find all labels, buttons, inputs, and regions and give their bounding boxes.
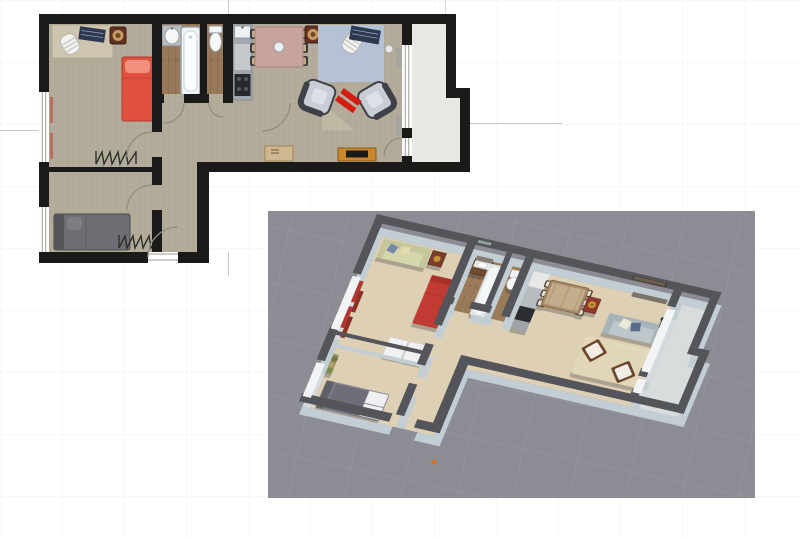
toilet[interactable] [209, 26, 222, 52]
floorplan-canvas [0, 0, 800, 537]
stove [235, 74, 251, 96]
sofa-pillow [630, 323, 641, 332]
tv-lowboard[interactable] [338, 148, 376, 161]
throw-pillow [400, 247, 410, 255]
tv [346, 151, 368, 158]
floorplan-page [0, 0, 800, 537]
view-3d[interactable] [268, 211, 755, 498]
bathtub[interactable] [181, 27, 200, 95]
curtain-smudge [396, 48, 402, 68]
camera-marker[interactable] [432, 460, 437, 465]
serving-bowl [274, 42, 284, 52]
window-curtain [50, 97, 53, 123]
washbasin[interactable] [162, 25, 182, 46]
sideboard[interactable] [265, 146, 293, 161]
dining-set[interactable] [250, 27, 308, 67]
plant-pot[interactable] [110, 27, 126, 44]
window-curtain [50, 133, 53, 159]
single-bed-red[interactable] [122, 57, 153, 121]
curtain-smudge [396, 115, 402, 135]
kitchen-counter[interactable] [233, 24, 252, 100]
floor-lamp-base [385, 45, 393, 53]
